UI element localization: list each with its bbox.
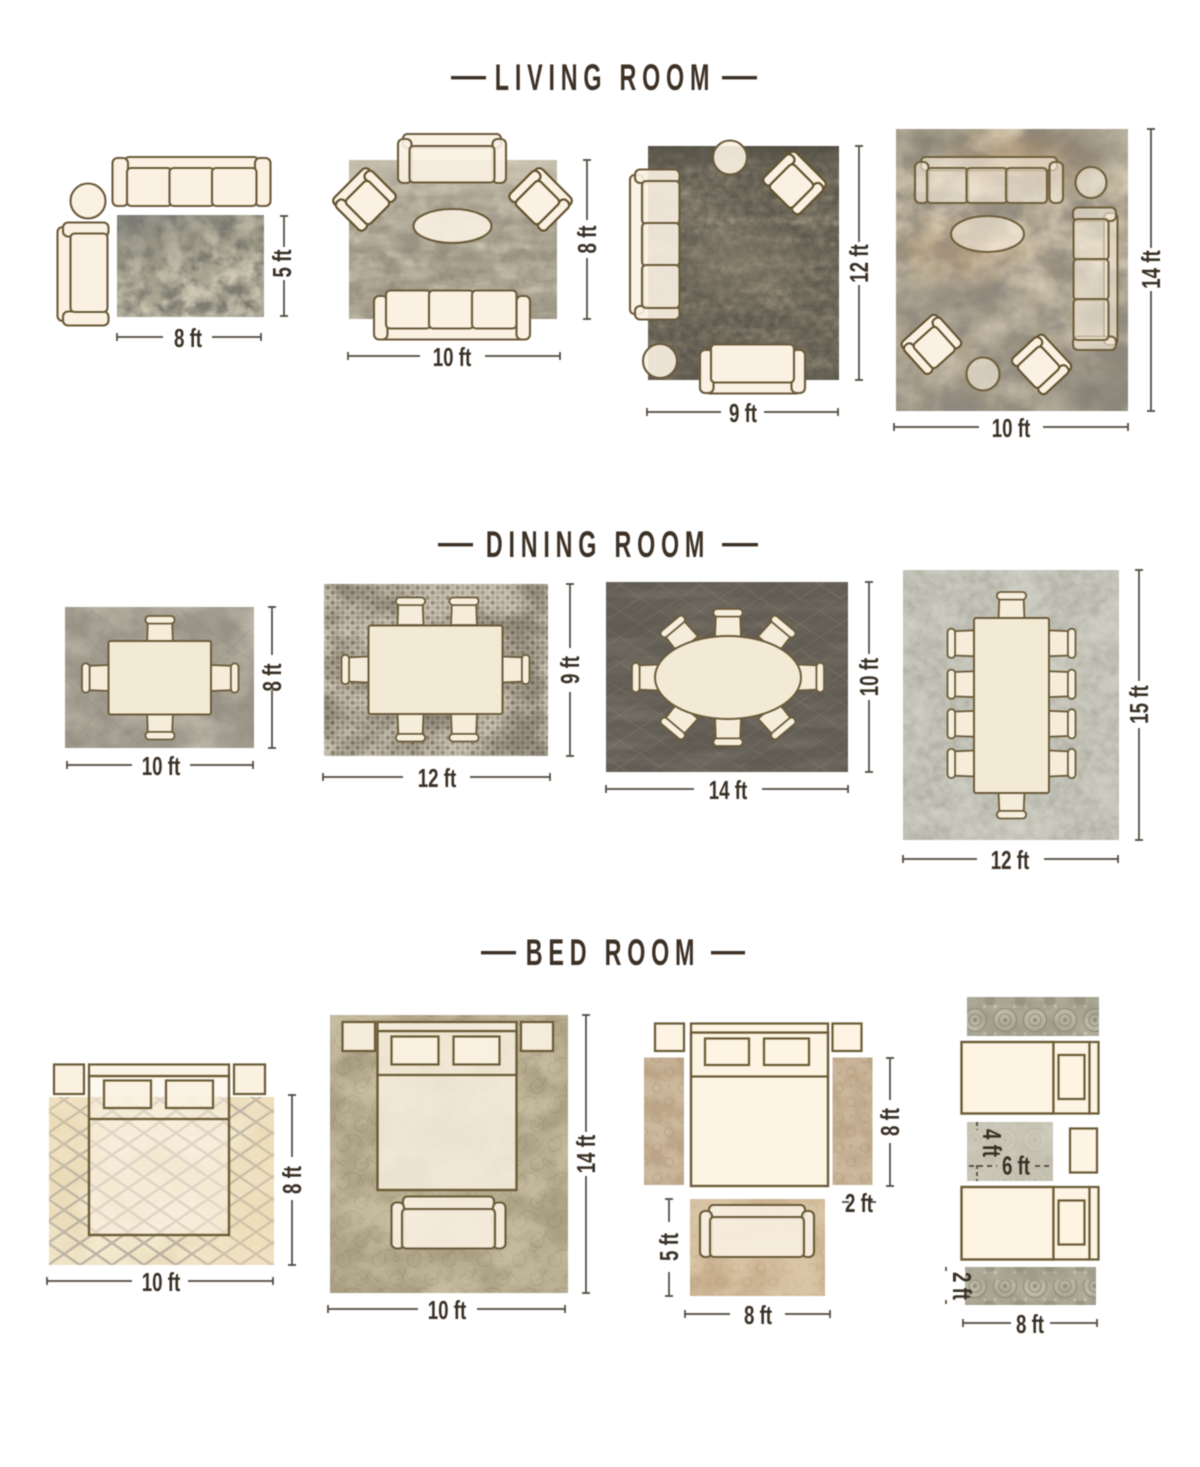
svg-text:14 ft: 14 ft [1136,250,1166,289]
svg-text:8 ft: 8 ft [1016,1309,1044,1339]
svg-text:LIVING ROOM: LIVING ROOM [495,56,715,98]
svg-text:10 ft: 10 ft [433,342,472,372]
svg-text:14 ft: 14 ft [571,1134,601,1173]
svg-text:8 ft: 8 ft [875,1108,905,1136]
svg-text:15 ft: 15 ft [1124,685,1154,724]
svg-text:8 ft: 8 ft [174,323,202,353]
svg-text:5 ft: 5 ft [654,1233,684,1261]
svg-text:10 ft: 10 ft [992,413,1031,443]
svg-text:12 ft: 12 ft [991,845,1030,875]
svg-text:2 ft: 2 ft [845,1188,873,1218]
svg-text:8 ft: 8 ft [744,1300,772,1330]
svg-text:10 ft: 10 ft [428,1295,467,1325]
svg-text:12 ft: 12 ft [418,763,457,793]
svg-text:10 ft: 10 ft [854,657,884,696]
svg-text:6 ft: 6 ft [1002,1150,1030,1180]
svg-text:8 ft: 8 ft [572,225,602,253]
svg-text:BED ROOM: BED ROOM [526,931,701,973]
svg-text:8 ft: 8 ft [257,663,287,691]
svg-text:12 ft: 12 ft [844,244,874,283]
svg-text:2 ft: 2 ft [947,1272,977,1300]
svg-text:14 ft: 14 ft [709,775,748,805]
svg-text:8 ft: 8 ft [277,1166,307,1194]
svg-text:10 ft: 10 ft [142,751,181,781]
svg-text:10 ft: 10 ft [142,1267,181,1297]
svg-text:9 ft: 9 ft [555,656,585,684]
svg-text:5 ft: 5 ft [267,249,297,277]
svg-text:9 ft: 9 ft [729,398,757,428]
svg-text:DINING ROOM: DINING ROOM [486,523,710,565]
